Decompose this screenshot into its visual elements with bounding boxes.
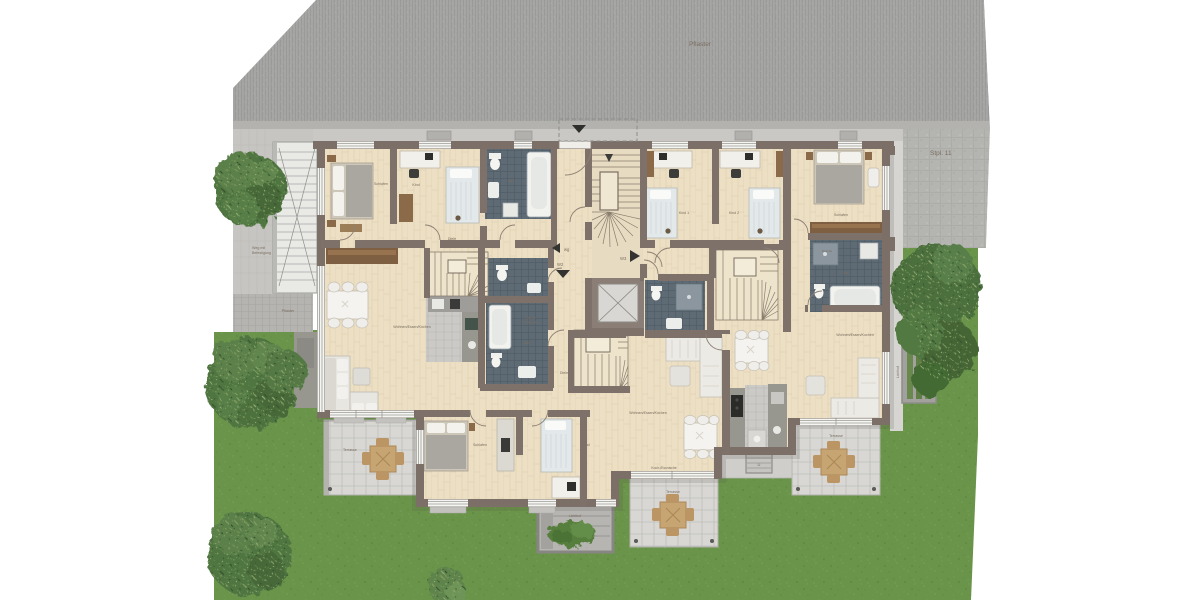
svg-text:Befestigung: Befestigung xyxy=(252,251,271,255)
svg-text:Pflaster: Pflaster xyxy=(282,309,296,313)
svg-text:Dusche: Dusche xyxy=(822,249,833,253)
svg-text:Wohnen/Essen/Kochen: Wohnen/Essen/Kochen xyxy=(393,325,431,329)
svg-text:Bad: Bad xyxy=(524,341,530,345)
svg-text:Weg mit: Weg mit xyxy=(252,246,265,250)
svg-text:Schlafen: Schlafen xyxy=(374,182,388,186)
svg-text:wg: wg xyxy=(564,247,570,252)
svg-text:Kind 1: Kind 1 xyxy=(679,211,689,215)
svg-text:W3: W3 xyxy=(620,256,627,261)
svg-text:Lichthof: Lichthof xyxy=(569,514,582,518)
svg-text:Dusche: Dusche xyxy=(525,316,536,320)
svg-text:im Wohnen: im Wohnen xyxy=(522,321,538,325)
svg-text:Bad: Bad xyxy=(508,179,514,183)
svg-text:Kind: Kind xyxy=(412,183,419,187)
svg-text:U: U xyxy=(758,462,761,467)
svg-text:Terrasse: Terrasse xyxy=(343,448,357,452)
svg-text:Stpl. 11: Stpl. 11 xyxy=(930,150,952,157)
svg-text:Terrasse: Terrasse xyxy=(666,490,680,494)
svg-text:Schlafen: Schlafen xyxy=(473,443,487,447)
svg-text:Pflaster: Pflaster xyxy=(689,41,712,48)
svg-text:Schlafen: Schlafen xyxy=(834,213,848,217)
svg-text:Wohnen/Essen/Kochen: Wohnen/Essen/Kochen xyxy=(836,333,874,337)
svg-text:Bad: Bad xyxy=(843,271,849,275)
svg-text:Diele: Diele xyxy=(560,371,568,375)
svg-text:Kind 2: Kind 2 xyxy=(729,211,739,215)
svg-text:W2: W2 xyxy=(557,262,564,267)
svg-text:Koch-/Essnische: Koch-/Essnische xyxy=(651,466,676,470)
svg-text:Wohnen/Essen/Kochen: Wohnen/Essen/Kochen xyxy=(629,411,667,415)
svg-text:Terrasse: Terrasse xyxy=(829,434,843,438)
svg-text:Lichthof: Lichthof xyxy=(896,366,900,378)
